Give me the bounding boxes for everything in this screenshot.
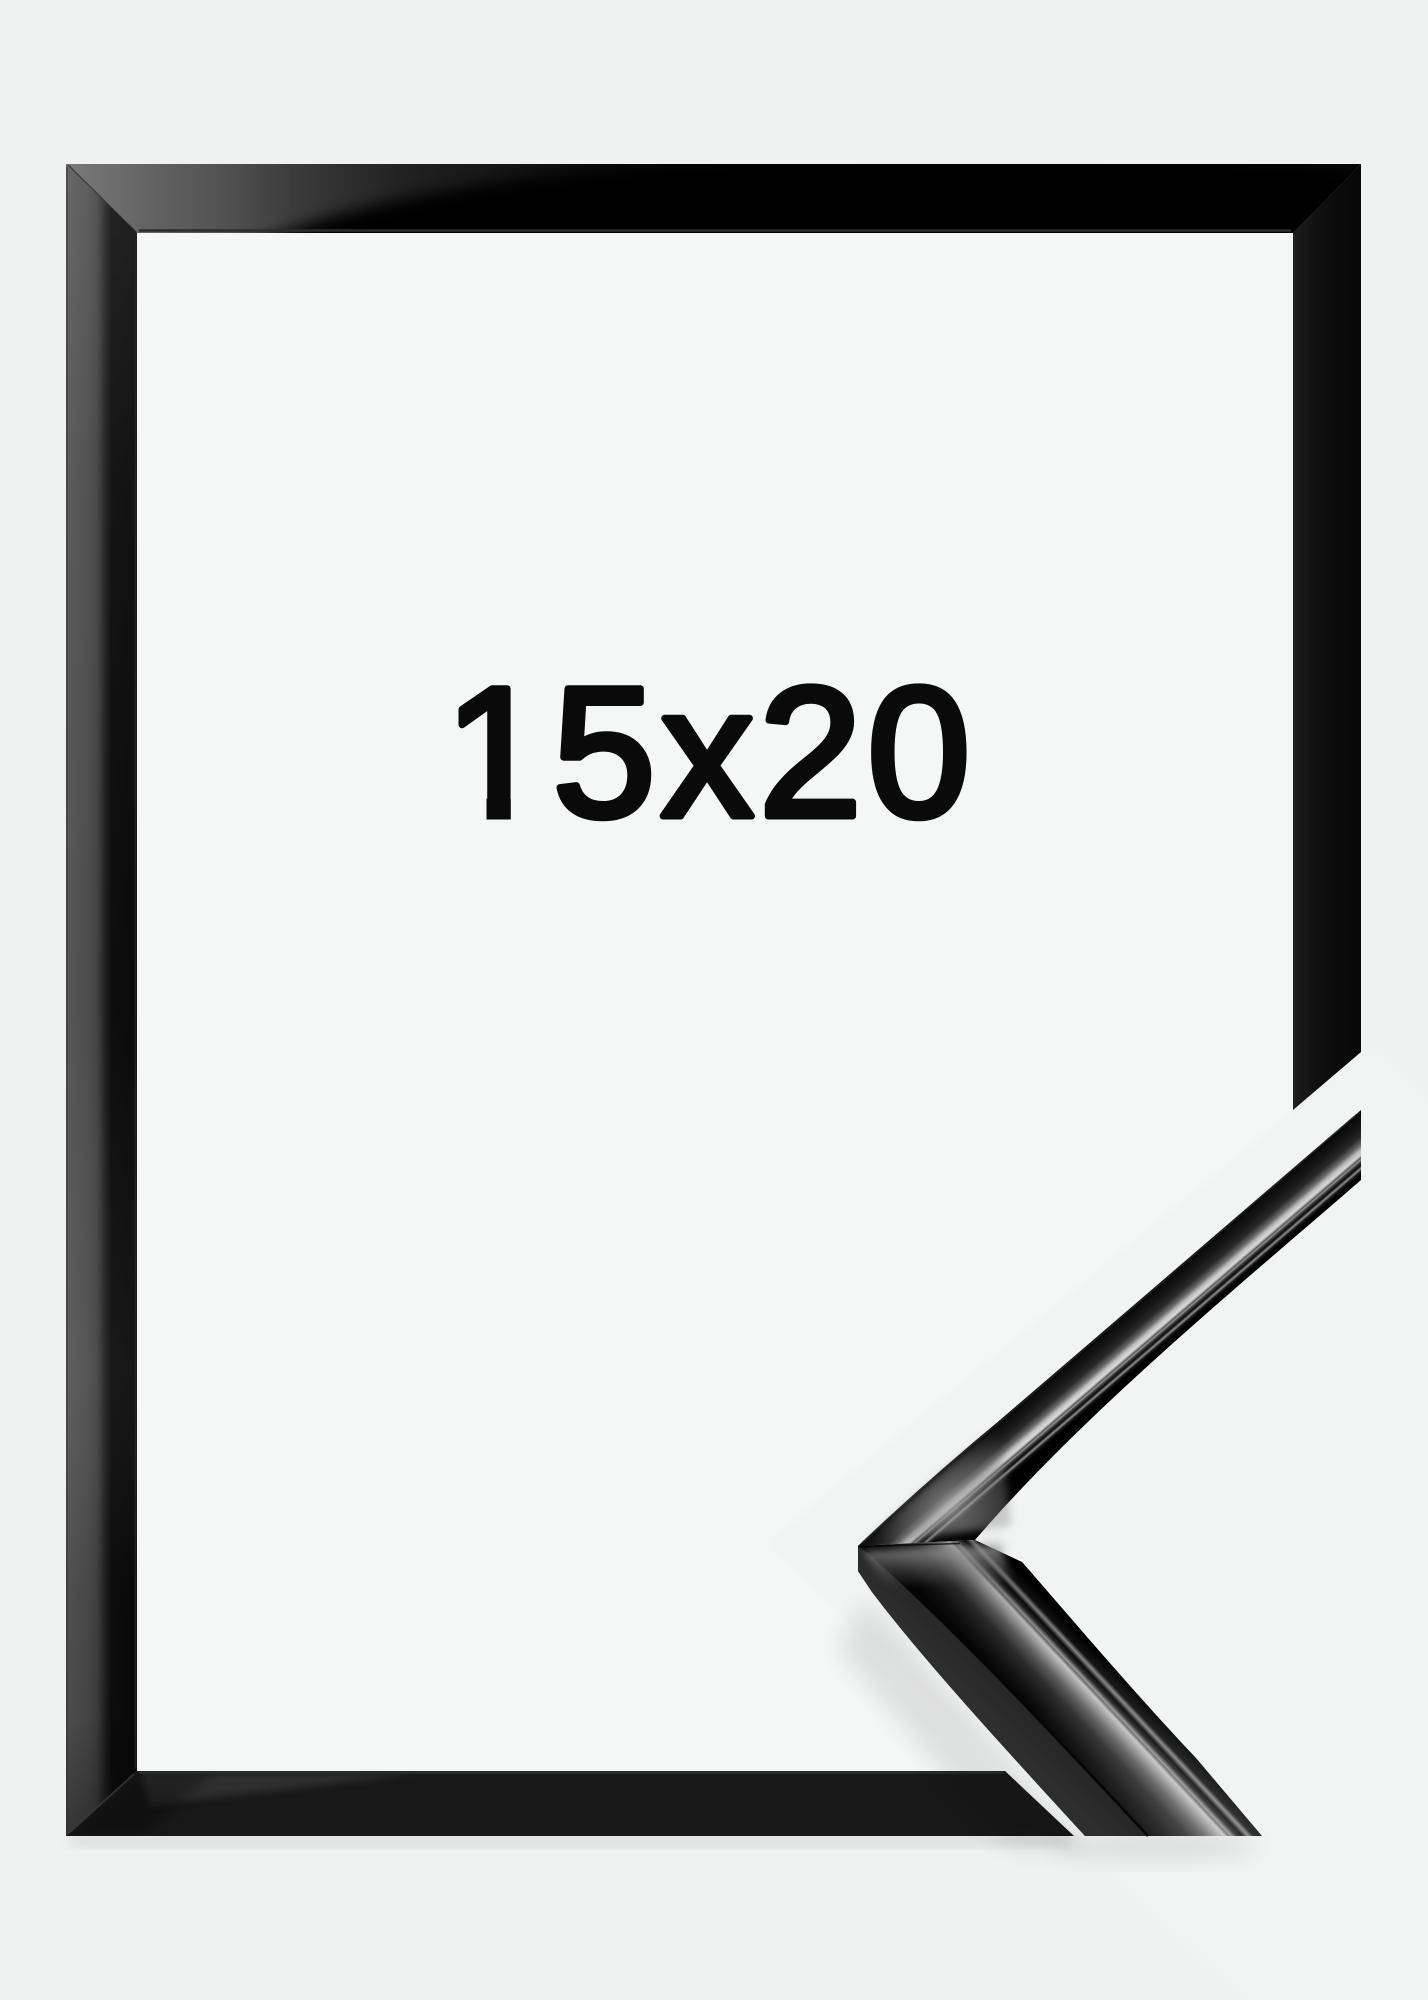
svg-text:15x20: 15x20 [444,650,976,856]
